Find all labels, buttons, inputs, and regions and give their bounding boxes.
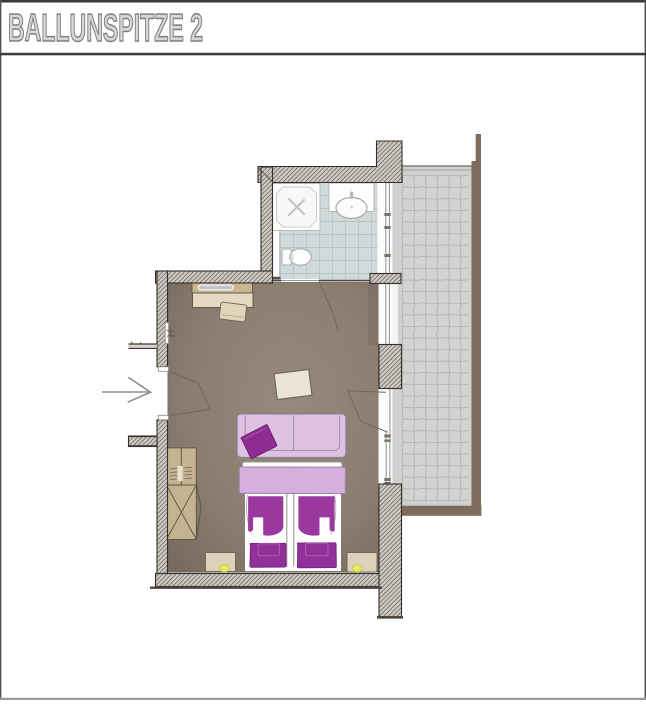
svg-text:BALLUNSPITZE 2: BALLUNSPITZE 2 [8, 6, 203, 50]
